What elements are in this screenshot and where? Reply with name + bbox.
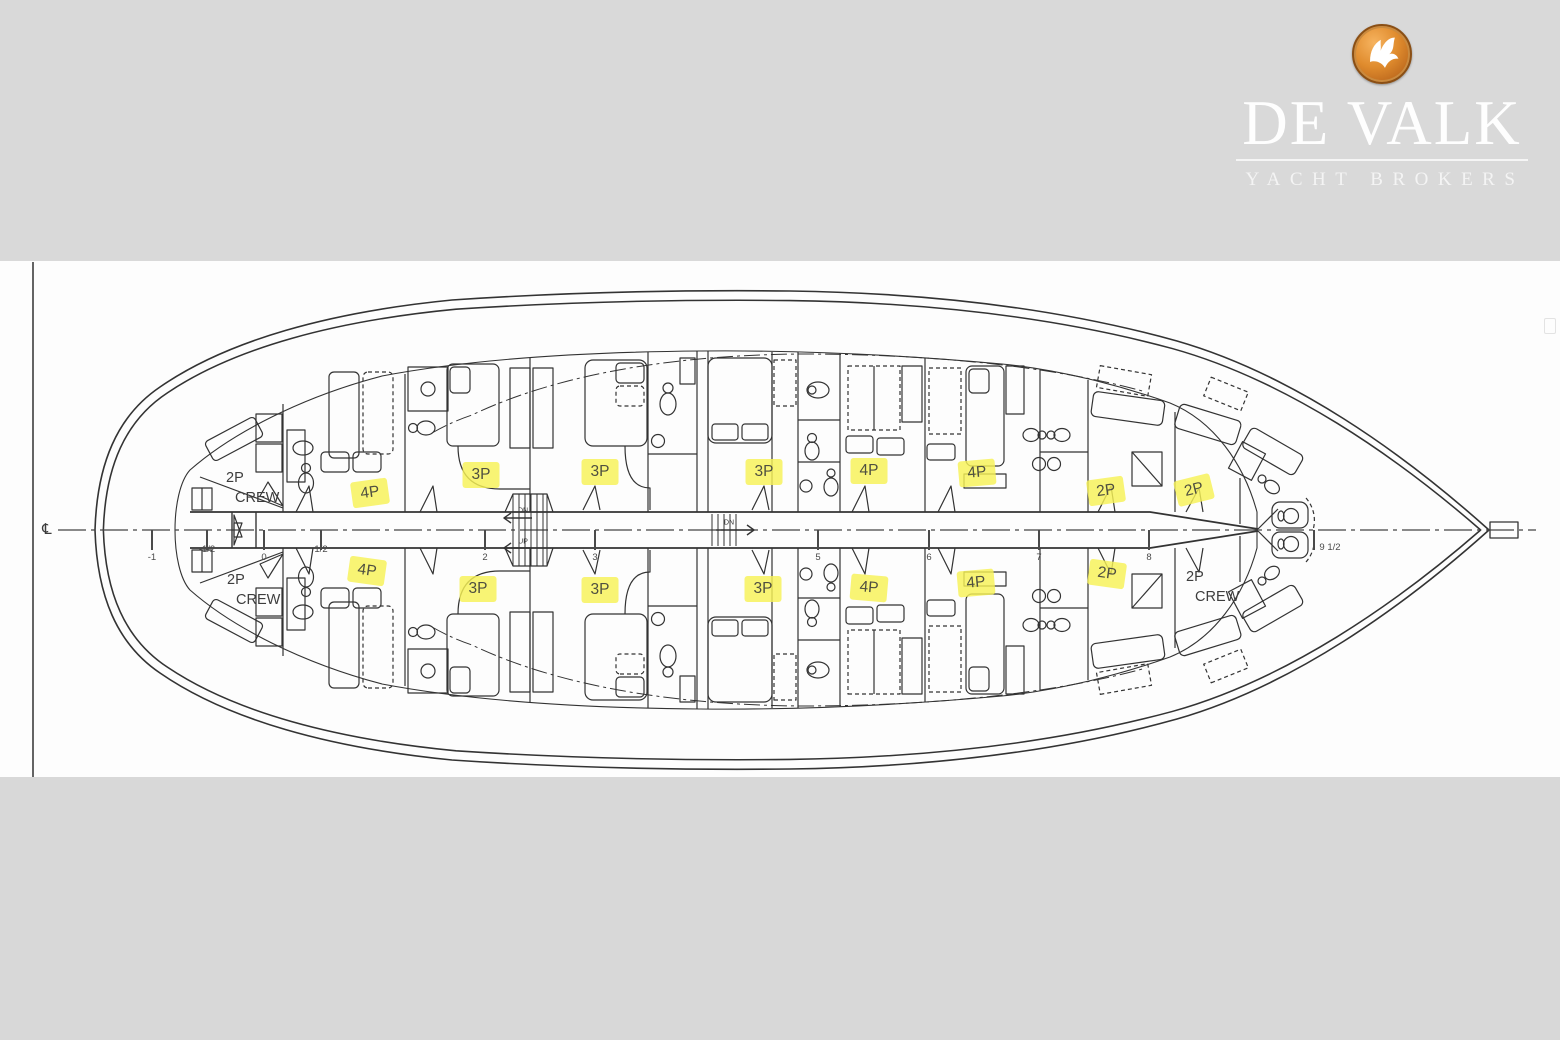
falcon-bird-glyph: [1358, 30, 1406, 78]
page-edge-rule: [32, 262, 34, 777]
screenshot-page: DE VALK YACHT BROKERS: [0, 0, 1560, 1040]
falcon-icon: [1352, 24, 1412, 84]
deck-plan-canvas: [0, 261, 1560, 777]
brand-name: DE VALK: [1230, 94, 1534, 152]
brand-logo-block: DE VALK YACHT BROKERS: [1230, 18, 1534, 191]
header-band: DE VALK YACHT BROKERS: [0, 0, 1560, 261]
scrollbar-remnant-mark: [1544, 318, 1556, 334]
brand-tagline: YACHT BROKERS: [1236, 169, 1534, 191]
brand-divider: [1236, 159, 1528, 161]
footer-band: SCANBOAT.COM: [0, 777, 1560, 1040]
